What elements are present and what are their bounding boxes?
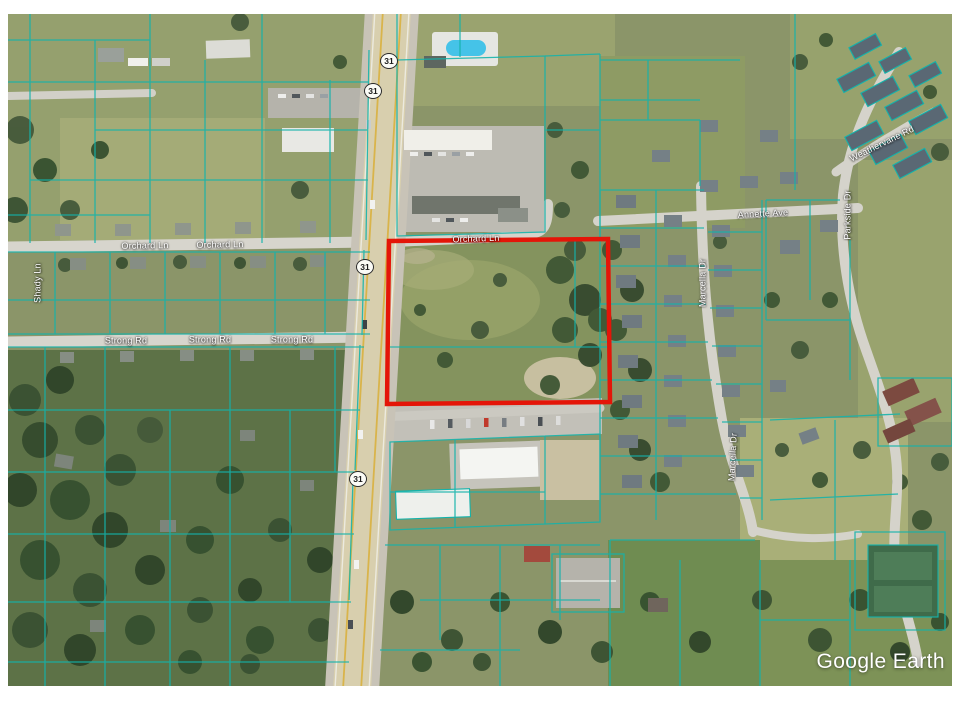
aerial-imagery xyxy=(8,14,952,686)
road-label-shady-ln: Shady Ln xyxy=(34,263,43,303)
road-label-orchard-ln: Orchard Ln xyxy=(121,241,168,251)
road-label-strong-rd: Strong Rd xyxy=(105,337,147,346)
road-label-strong-rd: Strong Rd xyxy=(189,336,231,345)
google-earth-watermark: Google Earth xyxy=(816,650,945,674)
road-label-parkside-dr: Parkside Dr xyxy=(844,190,853,239)
map-canvas[interactable]: Orchard Ln Orchard Ln Orchard Ln Strong … xyxy=(8,14,952,686)
road-label-marcella-dr: Marcella Dr xyxy=(699,259,708,307)
road-label-orchard-ln: Orchard Ln xyxy=(196,240,243,250)
road-label-strong-rd: Strong Rd xyxy=(271,336,313,345)
road-label-orchard-ln: Orchard Ln xyxy=(452,234,499,245)
route-31-shield: 31 xyxy=(364,83,382,99)
google-earth-window: Orchard Ln Orchard Ln Orchard Ln Strong … xyxy=(0,0,960,720)
route-31-shield: 31 xyxy=(380,53,398,69)
route-31-shield: 31 xyxy=(356,259,374,275)
route-31-shield: 31 xyxy=(349,471,367,487)
